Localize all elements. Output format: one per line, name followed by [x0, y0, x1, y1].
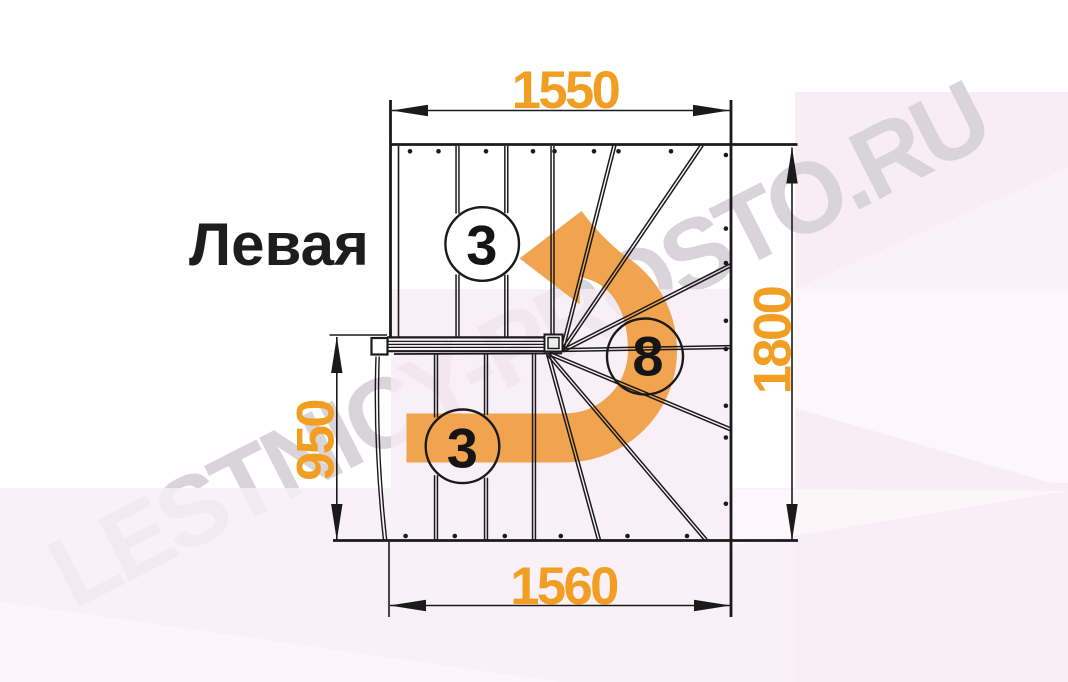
svg-text:3: 3 — [447, 417, 478, 480]
svg-text:Левая: Левая — [189, 211, 369, 278]
svg-text:1550: 1550 — [512, 61, 620, 120]
svg-text:3: 3 — [466, 214, 497, 277]
svg-text:950: 950 — [287, 400, 346, 481]
svg-text:8: 8 — [632, 325, 663, 388]
svg-text:1800: 1800 — [744, 286, 803, 394]
svg-text:1560: 1560 — [510, 557, 618, 616]
